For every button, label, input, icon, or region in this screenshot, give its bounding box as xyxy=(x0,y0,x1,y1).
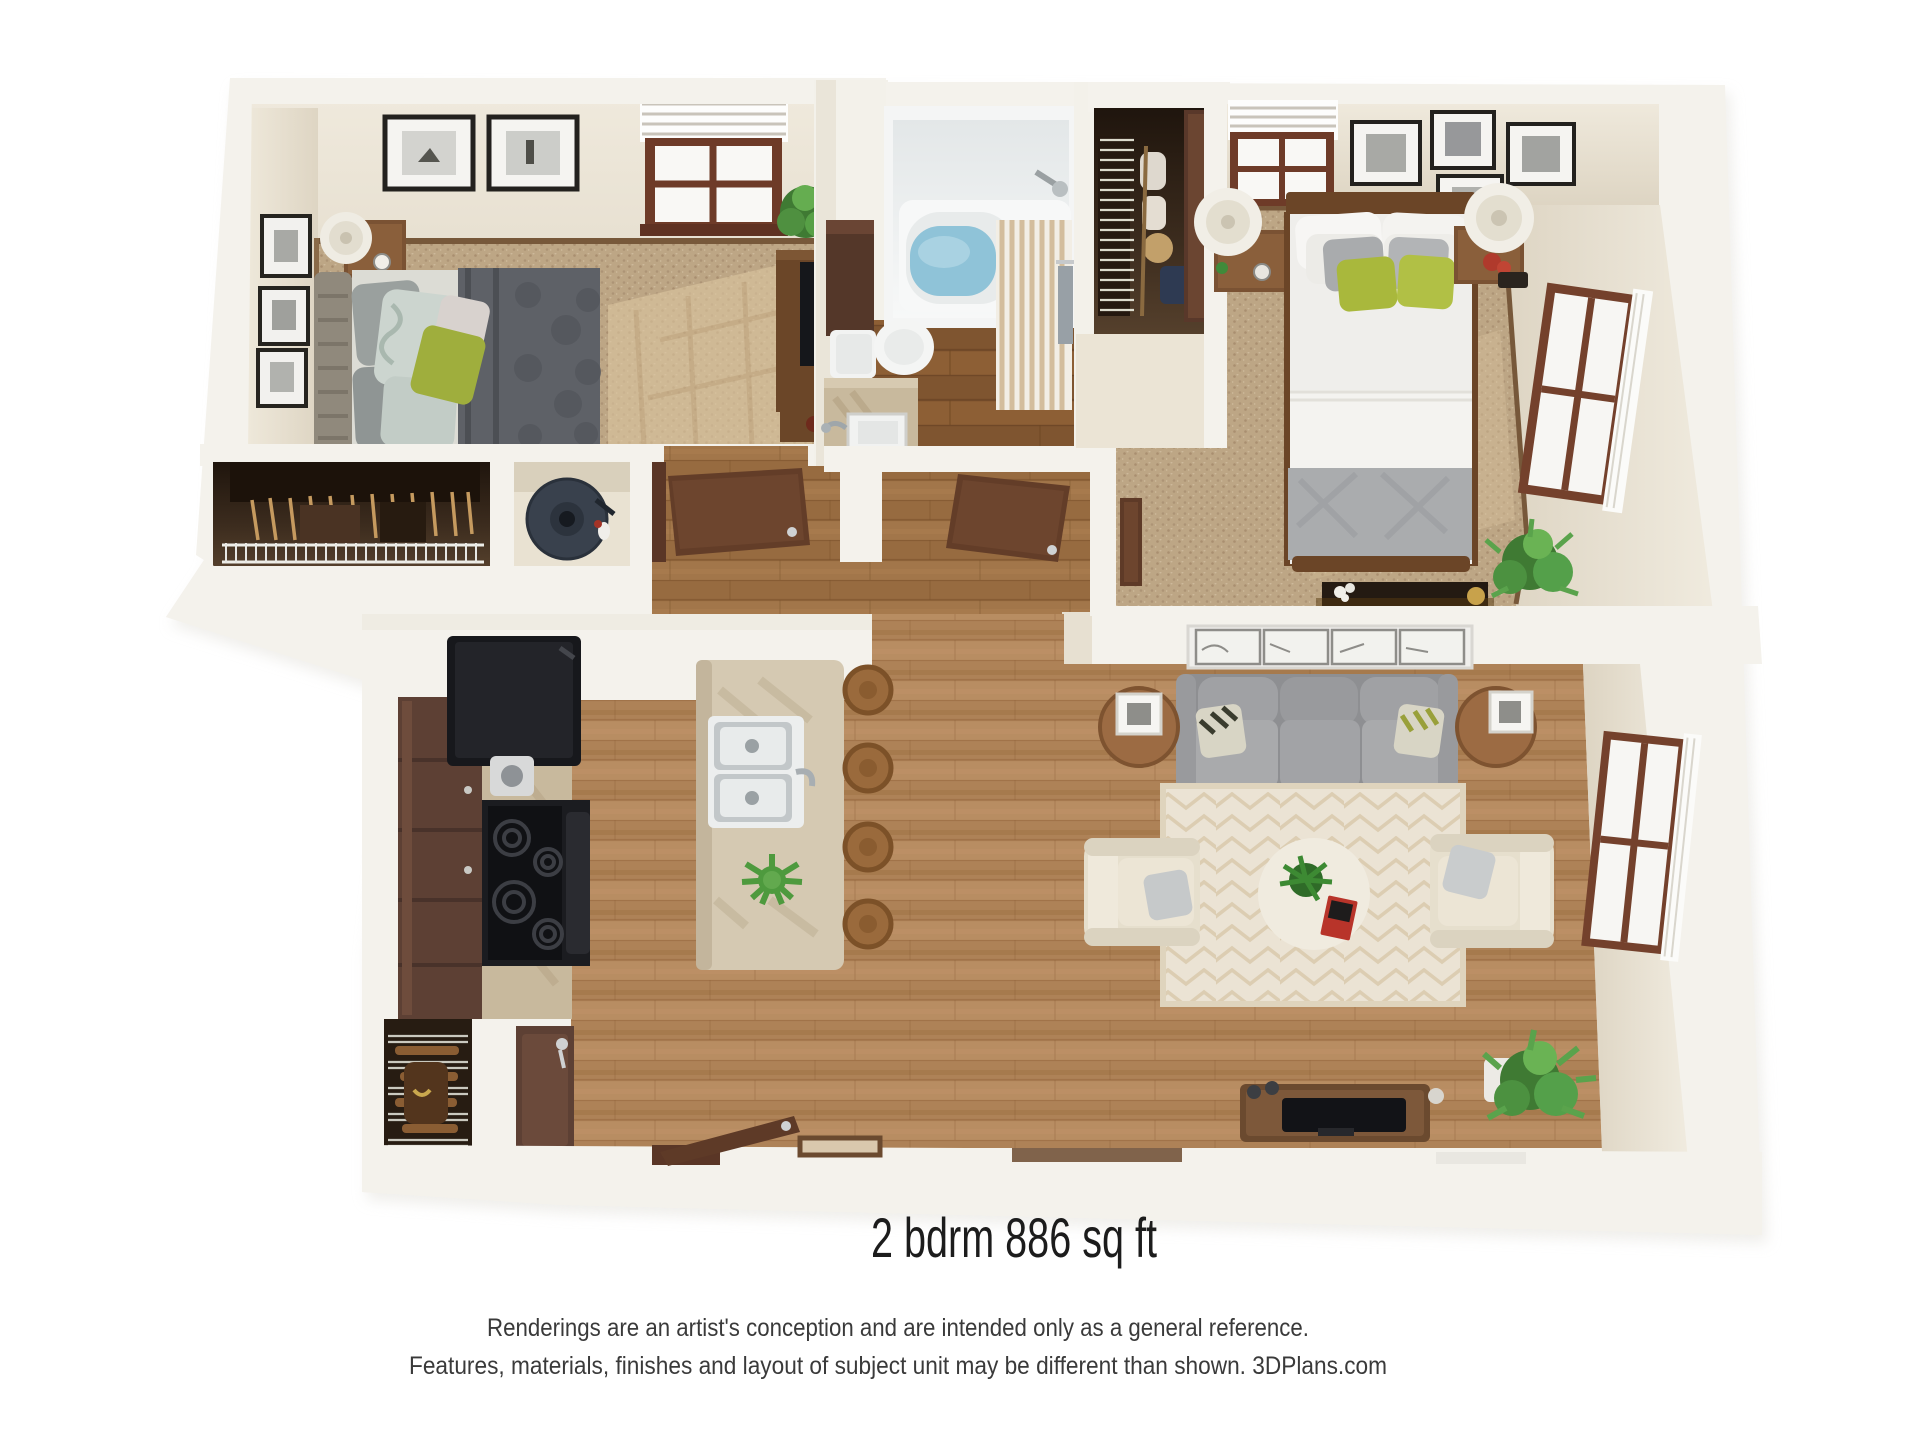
svg-text:2 bdrm 886 sq ft: 2 bdrm 886 sq ft xyxy=(871,1206,1157,1269)
svg-text:Renderings are an artist's con: Renderings are an artist's conception an… xyxy=(487,1314,1309,1342)
svg-text:Features, materials, finishes: Features, materials, finishes and layout… xyxy=(409,1352,1387,1380)
